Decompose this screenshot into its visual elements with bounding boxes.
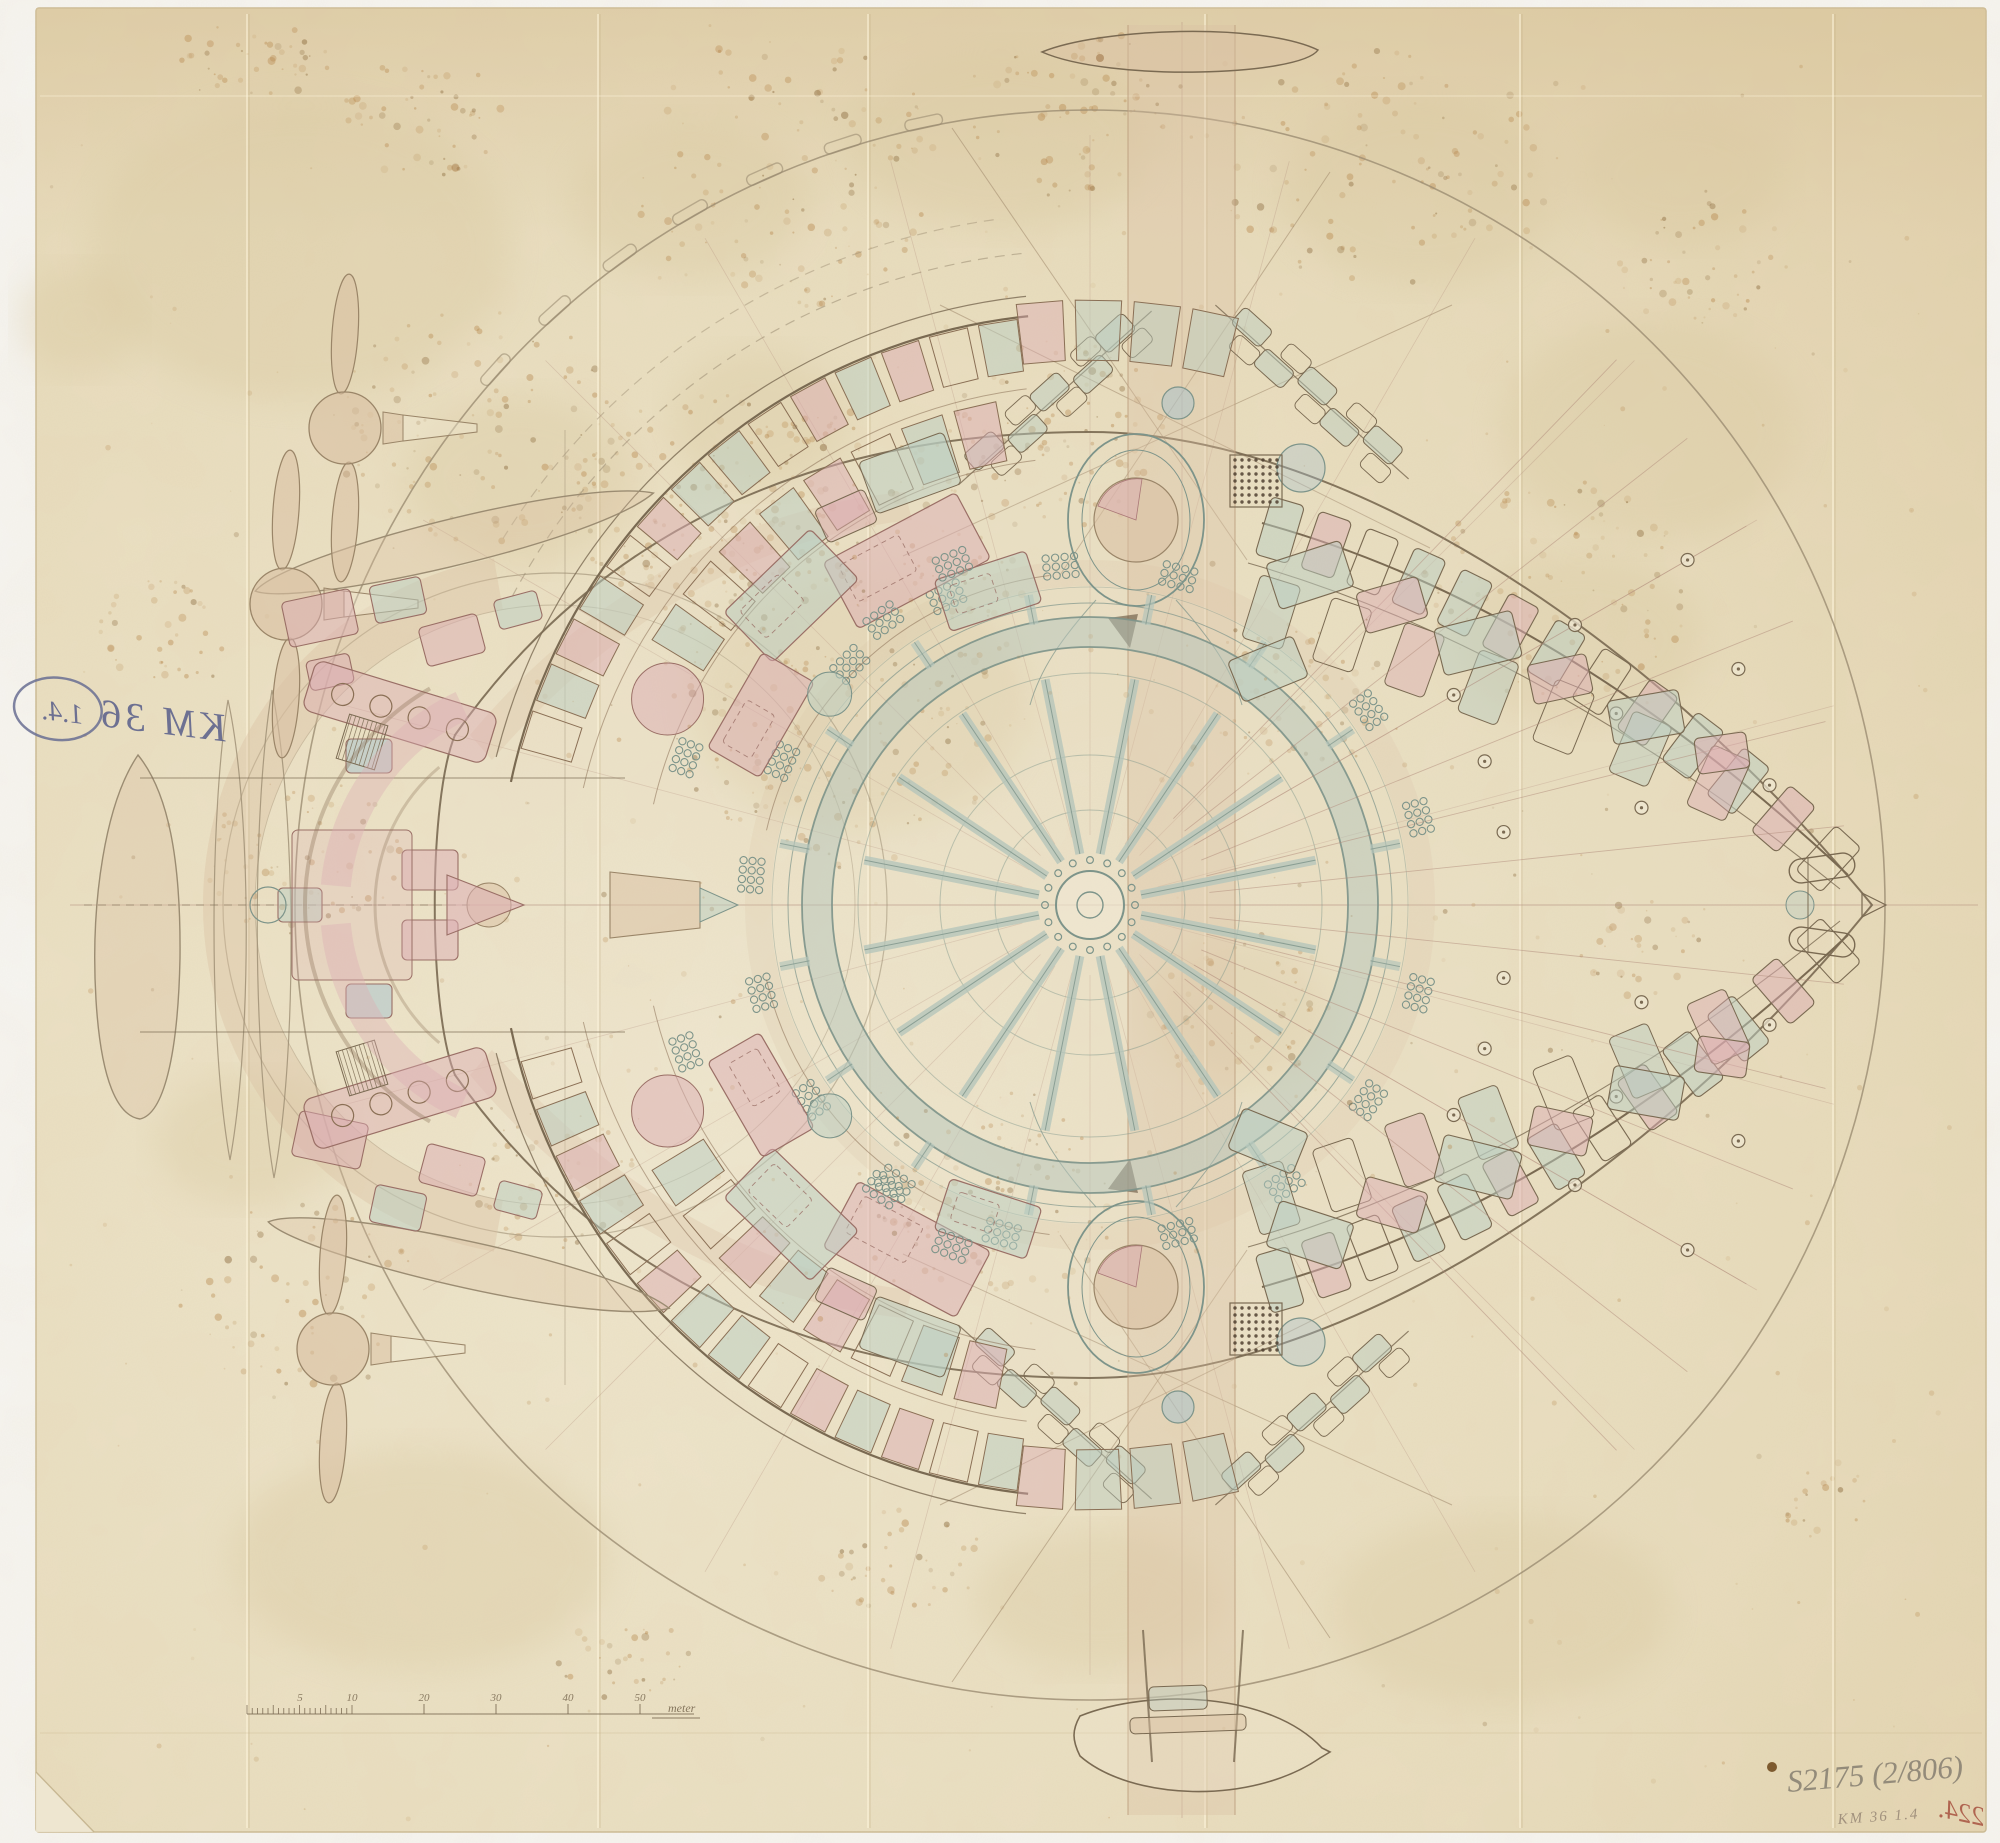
scale-unit-label: meter (668, 1701, 696, 1715)
scale-tick-label: 20 (419, 1692, 431, 1704)
drawing-sheet: KM 36 1.4. 51020304050meter S2175 (2/806… (0, 0, 2000, 1843)
scale-tick-label: 5 (297, 1692, 303, 1704)
scale-tick-label: 30 (490, 1692, 503, 1704)
scale-tick-label: 40 (563, 1692, 575, 1704)
scale-tick-label: 50 (635, 1692, 647, 1704)
scale-tick-label: 10 (347, 1692, 359, 1704)
stamp-number: 1.4. (40, 695, 85, 731)
airship-plan-drawing: KM 36 1.4. 51020304050meter S2175 (2/806… (0, 0, 2000, 1843)
